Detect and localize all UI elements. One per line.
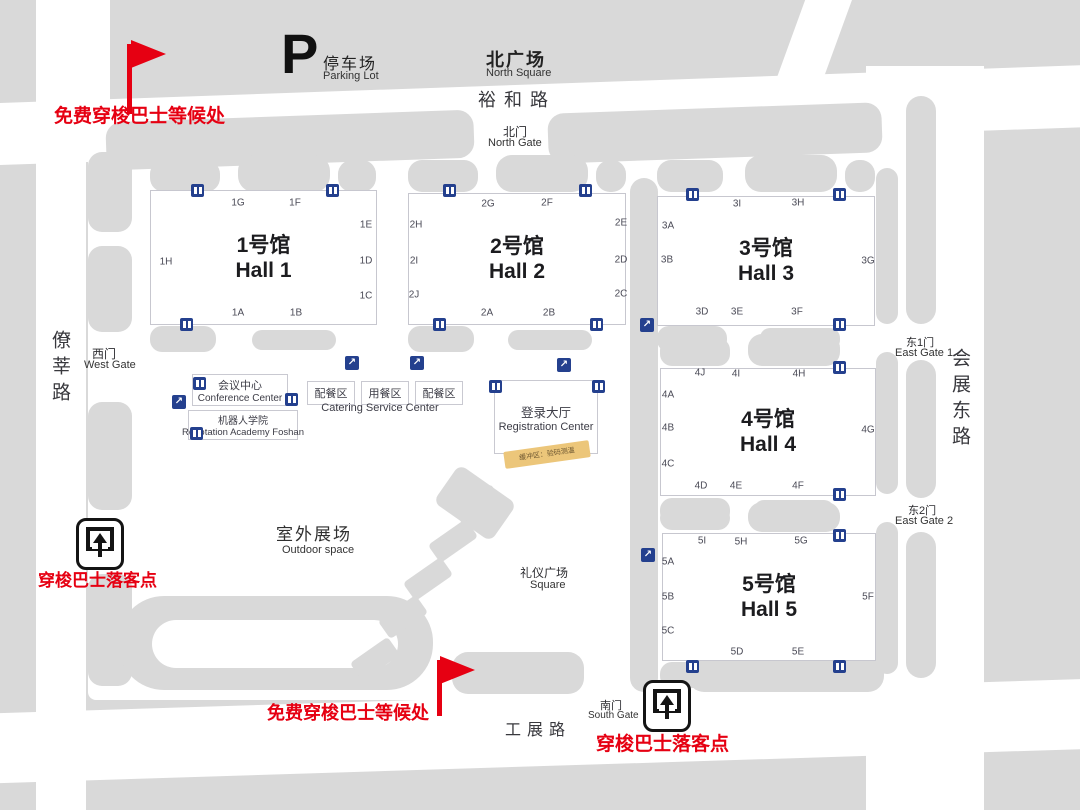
gate-label-5H: 5H bbox=[735, 537, 748, 548]
gate-label-5I: 5I bbox=[698, 536, 706, 547]
gate-label-1D: 1D bbox=[360, 256, 373, 267]
gate-label-1B: 1B bbox=[290, 308, 302, 319]
outdoor-space-label-zh: 室外展场 bbox=[276, 520, 352, 545]
entrance-icon bbox=[590, 318, 603, 331]
north-gate-label-en: North Gate bbox=[488, 137, 542, 149]
hall-5: 5号馆Hall 5 bbox=[662, 533, 876, 661]
entrance-icon bbox=[833, 361, 846, 374]
dining-box-label: 用餐区 bbox=[369, 385, 402, 401]
gate-label-4A: 4A bbox=[662, 390, 674, 401]
flag-icon bbox=[131, 40, 166, 68]
entrance-icon bbox=[180, 318, 193, 331]
gate-label-4B: 4B bbox=[662, 423, 674, 434]
gate-label-3F: 3F bbox=[791, 307, 803, 318]
registration-center-zh: 登录大厅 bbox=[521, 402, 571, 421]
map-shape bbox=[845, 160, 875, 192]
entrance-icon bbox=[833, 660, 846, 673]
road-north-label: 裕和路 bbox=[478, 86, 556, 112]
north-square-label-en: North Square bbox=[486, 67, 551, 79]
road-west-label: 僚莘路 bbox=[46, 330, 73, 408]
gate-label-4F: 4F bbox=[792, 481, 804, 492]
gate-label-4H: 4H bbox=[793, 369, 806, 380]
map-shape bbox=[876, 522, 898, 674]
shuttle-dropoff-icon bbox=[76, 518, 124, 570]
hall-5-title-zh: 5号馆 bbox=[742, 572, 796, 597]
gate-label-3A: 3A bbox=[662, 221, 674, 232]
shuttle-drop-label-left: 穿梭巴士落客点 bbox=[38, 566, 157, 591]
gate-label-5D: 5D bbox=[731, 647, 744, 658]
gate-label-5G: 5G bbox=[794, 536, 807, 547]
hall-5-title-en: Hall 5 bbox=[741, 597, 797, 622]
entrance-icon bbox=[833, 188, 846, 201]
gate-label-1C: 1C bbox=[360, 291, 373, 302]
gate-label-1F: 1F bbox=[289, 198, 301, 209]
robotation-academy-zh: 机器人学院 bbox=[218, 412, 268, 427]
gate-label-5A: 5A bbox=[662, 557, 674, 568]
conference-center-zh: 会议中心 bbox=[218, 377, 262, 393]
map-shape bbox=[630, 178, 658, 692]
gate-label-4G: 4G bbox=[861, 425, 874, 436]
catering-center-label-en: Catering Service Center bbox=[292, 402, 468, 414]
map-shape bbox=[88, 152, 132, 232]
gate-label-4C: 4C bbox=[662, 459, 675, 470]
shuttle-dropoff-icon bbox=[643, 680, 691, 732]
hall-4: 4号馆Hall 4 bbox=[660, 368, 876, 496]
gate-label-2G: 2G bbox=[481, 199, 494, 210]
map-shape bbox=[748, 334, 840, 366]
map-shape bbox=[660, 338, 730, 366]
hall-4-title-en: Hall 4 bbox=[740, 432, 796, 457]
gate-label-4I: 4I bbox=[732, 369, 740, 380]
south-gate-label-en: South Gate bbox=[588, 710, 639, 721]
shuttle-wait-label-top: 免费穿梭巴士等候处 bbox=[54, 101, 225, 128]
registration-center-en: Registration Center bbox=[499, 421, 594, 433]
escalator-icon: ↗ bbox=[410, 356, 424, 370]
map-shape bbox=[338, 160, 376, 192]
flag-icon bbox=[440, 656, 475, 684]
catering-box-1-label: 配餐区 bbox=[315, 385, 348, 401]
gate-label-3G: 3G bbox=[861, 256, 874, 267]
map-shape bbox=[876, 352, 898, 494]
hall-2-title-en: Hall 2 bbox=[489, 259, 545, 284]
gate-label-5B: 5B bbox=[662, 592, 674, 603]
flag-pole bbox=[437, 660, 442, 716]
entrance-icon bbox=[833, 488, 846, 501]
conference-center-en: Conference Center bbox=[198, 393, 283, 404]
map-shape bbox=[660, 506, 730, 530]
map-shape bbox=[496, 155, 588, 192]
entrance-icon bbox=[579, 184, 592, 197]
entrance-icon bbox=[433, 318, 446, 331]
exhibition-center-map: P 停车场 Parking Lot 北广场 North Square 裕和路 北… bbox=[0, 0, 1080, 810]
gate-label-1H: 1H bbox=[160, 257, 173, 268]
hall-3: 3号馆Hall 3 bbox=[657, 196, 875, 326]
hall-1-title-en: Hall 1 bbox=[235, 258, 291, 283]
gate-label-2C: 2C bbox=[615, 289, 628, 300]
map-shape bbox=[508, 330, 592, 350]
map-shape bbox=[906, 532, 936, 678]
shuttle-wait-label-bottom: 免费穿梭巴士等候处 bbox=[267, 699, 429, 725]
map-shape bbox=[88, 402, 132, 510]
gate-label-5E: 5E bbox=[792, 647, 804, 658]
outdoor-space-label-en: Outdoor space bbox=[282, 544, 354, 556]
entrance-icon bbox=[326, 184, 339, 197]
escalator-icon: ↗ bbox=[345, 356, 359, 370]
map-shape bbox=[745, 155, 837, 192]
entrance-icon bbox=[443, 184, 456, 197]
gate-label-2J: 2J bbox=[409, 290, 420, 301]
gate-label-5F: 5F bbox=[862, 592, 874, 603]
gate-label-4E: 4E bbox=[730, 481, 742, 492]
gate-label-2H: 2H bbox=[410, 220, 423, 231]
entrance-icon bbox=[190, 427, 203, 440]
ceremony-square-label-en: Square bbox=[530, 579, 565, 591]
entrance-icon bbox=[686, 188, 699, 201]
gate-label-1G: 1G bbox=[231, 198, 244, 209]
entrance-icon bbox=[833, 318, 846, 331]
gate-label-1A: 1A bbox=[232, 308, 244, 319]
gate-label-3H: 3H bbox=[792, 198, 805, 209]
road-east-label: 会展东路 bbox=[946, 348, 973, 452]
escalator-icon: ↗ bbox=[172, 395, 186, 409]
map-shape bbox=[252, 330, 336, 350]
gate-label-3I: 3I bbox=[733, 199, 741, 210]
hall-4-title-zh: 4号馆 bbox=[741, 407, 795, 432]
gate-label-2A: 2A bbox=[481, 308, 493, 319]
map-shape bbox=[748, 502, 840, 532]
gate-label-2E: 2E bbox=[615, 218, 627, 229]
road-south-label: 工展路 bbox=[505, 716, 571, 740]
map-shape bbox=[906, 96, 936, 324]
entrance-icon bbox=[686, 660, 699, 673]
hall-2-title-zh: 2号馆 bbox=[490, 234, 544, 259]
gate-label-3E: 3E bbox=[731, 307, 743, 318]
hall-2: 2号馆Hall 2 bbox=[408, 193, 626, 325]
map-shape bbox=[906, 360, 936, 498]
map-shape bbox=[876, 168, 898, 324]
map-shape bbox=[88, 246, 132, 332]
escalator-icon: ↗ bbox=[557, 358, 571, 372]
east-gate-1-label-en: East Gate 1 bbox=[895, 347, 953, 359]
entrance-icon bbox=[833, 529, 846, 542]
gate-label-2B: 2B bbox=[543, 308, 555, 319]
catering-box-2-label: 配餐区 bbox=[423, 385, 456, 401]
escalator-icon: ↗ bbox=[640, 318, 654, 332]
gate-label-2I: 2I bbox=[410, 256, 418, 267]
gate-label-2F: 2F bbox=[541, 198, 553, 209]
entrance-icon bbox=[193, 377, 206, 390]
conference-center-box: 会议中心 Conference Center bbox=[192, 374, 288, 406]
map-shape bbox=[238, 155, 330, 192]
gate-label-2D: 2D bbox=[615, 255, 628, 266]
map-shape bbox=[150, 160, 220, 192]
hall-1-title-zh: 1号馆 bbox=[237, 233, 291, 258]
hall-3-title-en: Hall 3 bbox=[738, 261, 794, 286]
robotation-academy-box: 机器人学院 Robotation Academy Foshan bbox=[188, 410, 298, 440]
shuttle-drop-label-right: 穿梭巴士落客点 bbox=[596, 729, 729, 756]
gate-label-4D: 4D bbox=[695, 481, 708, 492]
hall-1: 1号馆Hall 1 bbox=[150, 190, 377, 325]
entrance-icon bbox=[489, 380, 502, 393]
hall-3-title-zh: 3号馆 bbox=[739, 236, 793, 261]
gate-label-4J: 4J bbox=[695, 368, 706, 379]
east-gate-2-label-en: East Gate 2 bbox=[895, 515, 953, 527]
gate-label-3D: 3D bbox=[696, 307, 709, 318]
west-gate-label-en: West Gate bbox=[84, 359, 136, 371]
entrance-icon bbox=[592, 380, 605, 393]
gate-label-5C: 5C bbox=[662, 626, 675, 637]
gate-label-3B: 3B bbox=[661, 255, 673, 266]
parking-label-en: Parking Lot bbox=[323, 70, 379, 82]
gate-label-1E: 1E bbox=[360, 220, 372, 231]
escalator-icon: ↗ bbox=[641, 548, 655, 562]
entrance-icon bbox=[285, 393, 298, 406]
map-shape bbox=[596, 160, 626, 192]
parking-symbol: P bbox=[281, 26, 318, 82]
entrance-icon bbox=[191, 184, 204, 197]
